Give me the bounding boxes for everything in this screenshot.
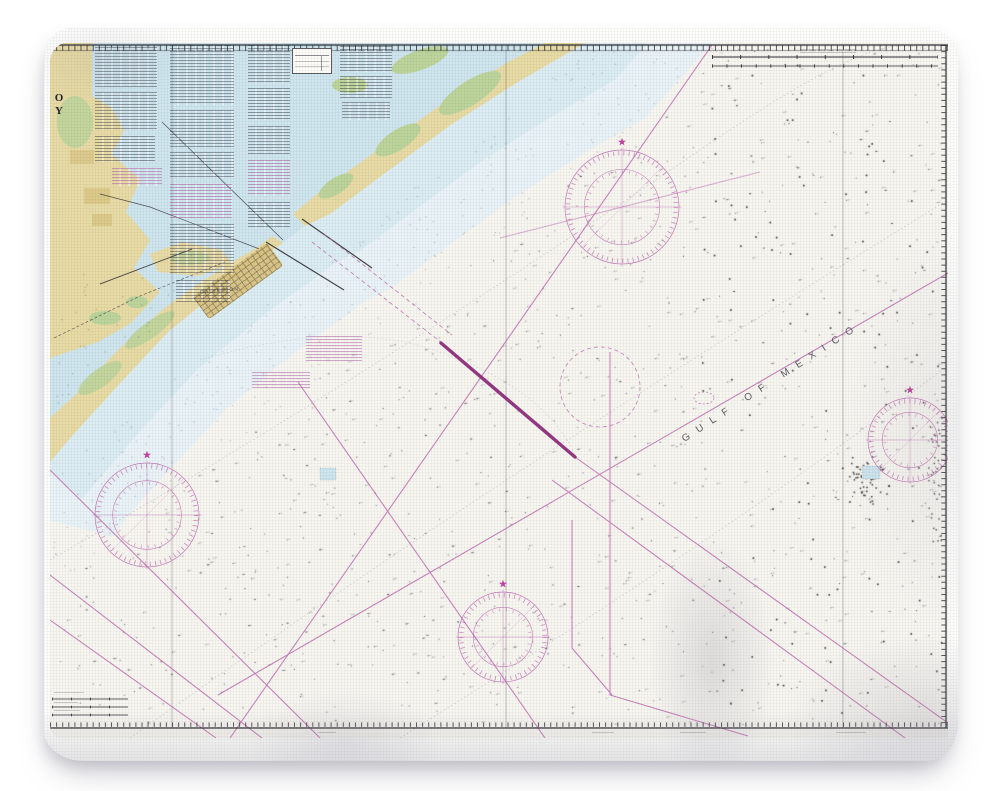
- note-block: [836, 732, 866, 735]
- bay-channels: [54, 122, 283, 338]
- note-block: [54, 710, 80, 713]
- north-star-icon: [618, 138, 626, 146]
- note-block: [318, 732, 336, 735]
- north-star-icon: [143, 451, 151, 459]
- note-block: [170, 45, 234, 105]
- north-star-icon: [906, 386, 914, 394]
- note-block: [248, 45, 290, 83]
- note-block: [95, 136, 155, 162]
- jetties: [266, 219, 372, 290]
- note-block: [340, 46, 392, 72]
- note-block: [592, 732, 614, 735]
- title-fragment-line2: Y: [50, 105, 68, 118]
- anchorage-circles: [560, 347, 714, 427]
- title-fragment-line1: O: [50, 92, 68, 105]
- note-block: [248, 88, 290, 120]
- blanket: O Y GULF OF MEXICO GALVESTON: [44, 28, 958, 761]
- chart-print: O Y GULF OF MEXICO GALVESTON: [50, 42, 948, 738]
- note-block: [548, 42, 578, 43]
- note-block: [170, 184, 232, 218]
- scale-bars: [712, 57, 938, 66]
- note-block: [54, 692, 84, 695]
- note-block: [754, 42, 798, 43]
- note-block: [248, 126, 290, 154]
- entrance-channel-dashed: [312, 234, 452, 343]
- note-block: [170, 224, 234, 274]
- note-block: [342, 102, 390, 120]
- note-block: [248, 160, 290, 196]
- note-block: [252, 372, 310, 388]
- note-block: [306, 336, 362, 362]
- note-block: [170, 110, 234, 148]
- note-block: [54, 702, 78, 705]
- note-block: [170, 152, 234, 178]
- channel-centerline: [441, 343, 575, 457]
- chart-table: [292, 48, 332, 74]
- note-block: [248, 202, 290, 228]
- note-block: [800, 49, 856, 53]
- note-block: [680, 732, 706, 735]
- note-block: [95, 92, 157, 130]
- note-block: [112, 168, 162, 186]
- shoal-patches: [320, 466, 880, 480]
- note-block: [95, 47, 157, 87]
- note-block: [340, 76, 392, 98]
- chart-title-fragment: O Y: [50, 92, 68, 117]
- product-photo: O Y GULF OF MEXICO GALVESTON: [0, 0, 1000, 791]
